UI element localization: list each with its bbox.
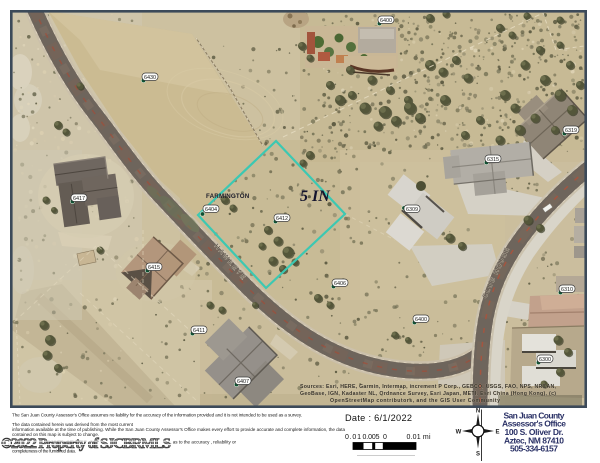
svg-text:6315: 6315 [487, 157, 499, 163]
svg-text:6411: 6411 [193, 328, 205, 334]
svg-text:6417: 6417 [73, 196, 85, 202]
svg-text:6412: 6412 [276, 216, 288, 222]
svg-text:6407: 6407 [237, 379, 249, 385]
svg-text:0.01: 0.01 [345, 434, 361, 441]
svg-text:S: S [476, 452, 480, 458]
svg-text:5 IN: 5 IN [300, 188, 331, 205]
svg-text:6309: 6309 [406, 207, 418, 213]
svg-text:6400: 6400 [380, 18, 392, 24]
svg-text:The San Juan County Assessor's: The San Juan County Assessor's Office as… [12, 413, 302, 418]
svg-text:OpenStreetMap contributors, an: OpenStreetMap contributors, and the GIS … [330, 398, 500, 404]
svg-text:0: 0 [383, 434, 387, 441]
svg-text:Date : 6/1/2022: Date : 6/1/2022 [345, 413, 412, 423]
svg-text:6319: 6319 [565, 128, 577, 134]
svg-text:c, as to the accuracy , reliab: c, as to the accuracy , reliability or [168, 440, 236, 445]
svg-text:W: W [456, 429, 462, 435]
svg-text:6430: 6430 [144, 75, 156, 81]
svg-text:6400: 6400 [415, 317, 427, 323]
svg-text:505-334-6157: 505-334-6157 [510, 444, 558, 454]
svg-text:6406: 6406 [334, 281, 346, 287]
svg-text:GeoBase, IGN, Kadaster NL, Ord: GeoBase, IGN, Kadaster NL, Ordnance Surv… [300, 391, 556, 397]
svg-text:6310: 6310 [561, 287, 573, 293]
svg-text:FARMINGTON: FARMINGTON [206, 193, 250, 200]
svg-text:©2022 Property of SJCBRMLS: ©2022 Property of SJCBRMLS [1, 436, 171, 452]
svg-text:6415: 6415 [148, 265, 160, 271]
svg-text:Sources: Esri, HERE, Garmin, I: Sources: Esri, HERE, Garmin, Intermap, i… [300, 384, 557, 390]
svg-text:N: N [476, 409, 480, 415]
svg-text:6300: 6300 [539, 357, 551, 363]
svg-text:0.005: 0.005 [363, 434, 380, 441]
svg-text:E: E [495, 429, 499, 435]
svg-text:0.01 mi: 0.01 mi [407, 434, 431, 441]
svg-text:6404: 6404 [205, 207, 217, 213]
